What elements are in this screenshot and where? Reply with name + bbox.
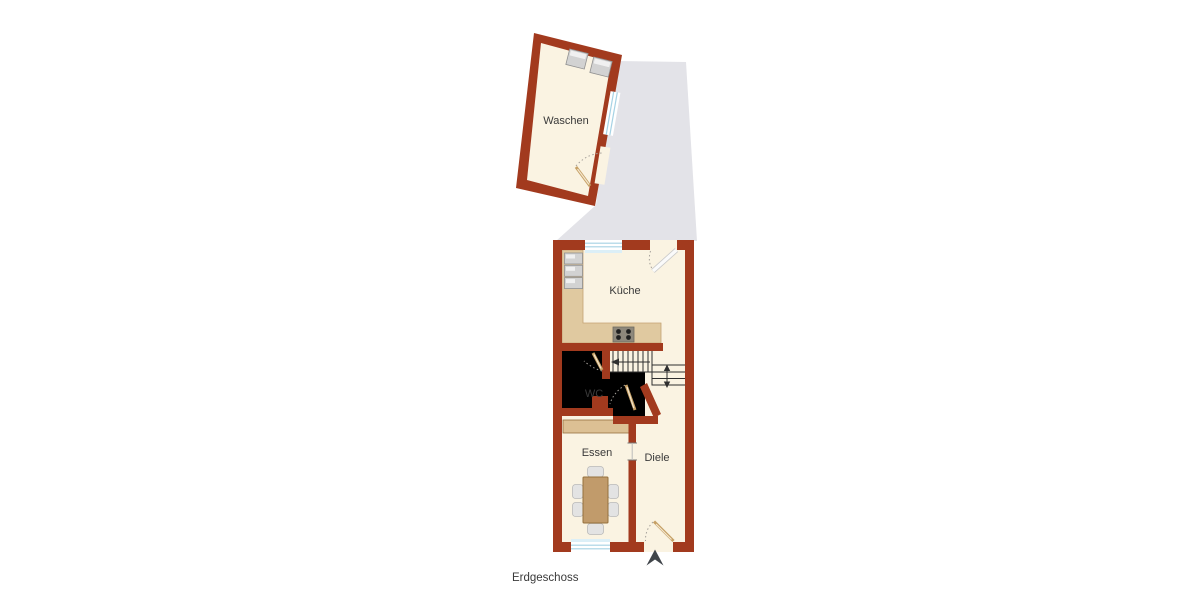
fridge-icon [565, 253, 583, 289]
floor-title: Erdgeschoss [512, 572, 579, 584]
kitchen-window [585, 240, 622, 253]
essen-window [571, 539, 610, 552]
kueche-label: Küche [609, 285, 640, 297]
stove-icon [613, 327, 634, 342]
essen-label: Essen [582, 447, 613, 459]
floor-plan-page: Waschen [0, 0, 1200, 600]
floor-plan-drawing: Waschen [0, 0, 1200, 600]
diele-label: Diele [644, 452, 669, 464]
waschen-label: Waschen [543, 115, 588, 127]
main-building: Küche WC Essen Diele [553, 240, 694, 552]
wc-label: WC [585, 388, 603, 400]
